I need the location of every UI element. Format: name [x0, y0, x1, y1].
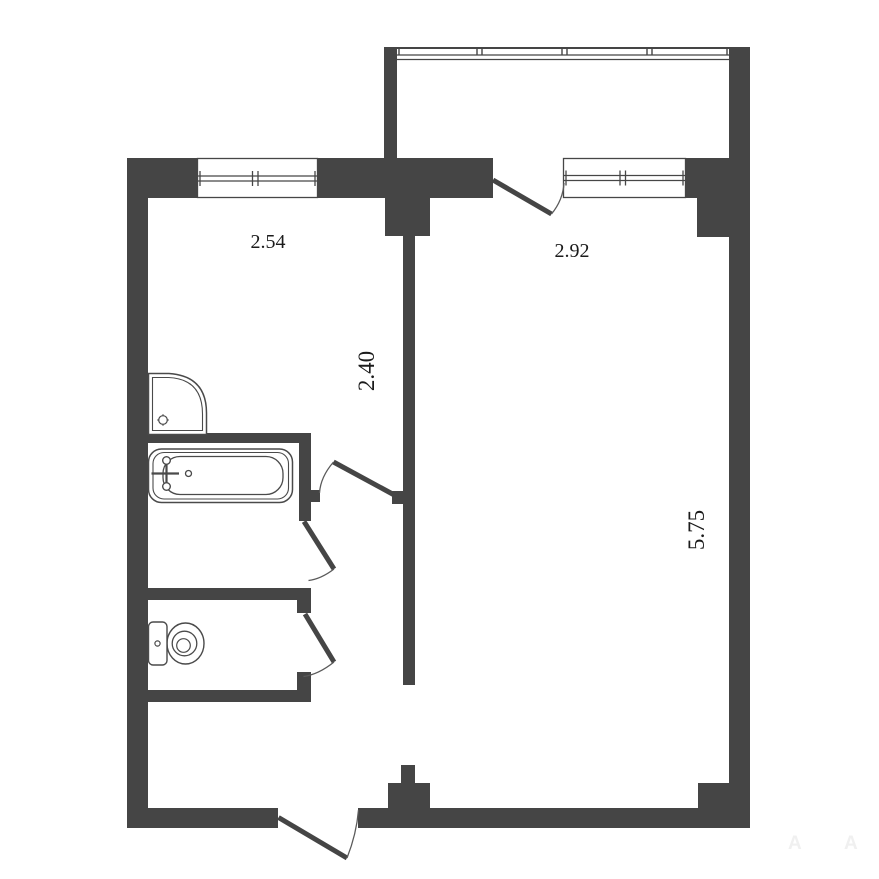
bathroom-door-leaf: [304, 522, 334, 570]
right-exterior-wall: [729, 47, 750, 828]
pier-entrance-stem: [401, 765, 415, 783]
toilet-door-jamb-top: [297, 588, 311, 613]
shower-outer-outline: [149, 374, 207, 435]
kitchen-door-leaf: [334, 462, 399, 497]
bathroom-door-jamb: [299, 490, 320, 502]
floorplan-svg: 2.54 2.92 2.40 5.75 A A: [0, 0, 879, 879]
bottom-wall-right-segment: [358, 808, 750, 828]
living-room-window: [564, 159, 686, 198]
balcony-door-leaf: [493, 180, 552, 214]
faucet-knob-bottom: [163, 483, 171, 491]
balcony-door: [493, 180, 564, 214]
faucet-knob-top: [163, 457, 171, 465]
left-exterior-wall: [127, 158, 148, 828]
entrance-door: [279, 810, 359, 858]
toilet-door: [304, 614, 335, 677]
entrance-door-swing-arc: [347, 810, 359, 858]
balcony-glazing: [393, 48, 729, 60]
toilet-tank: [149, 622, 168, 665]
fixtures: [149, 374, 293, 666]
kitchen-door: [320, 462, 399, 497]
living-window-niche: [564, 159, 686, 198]
kitchen-depth-label: 2.40: [354, 351, 379, 391]
doors: [279, 180, 565, 858]
bath-toilet-divider-wall: [148, 588, 311, 600]
bathroom-door: [304, 522, 334, 581]
pier-entrance: [388, 783, 430, 808]
bathtub-icon: [149, 449, 293, 503]
bathroom-door-swing-arc: [309, 569, 335, 581]
balcony-door-swing-arc: [552, 183, 565, 214]
balcony-left-wall: [384, 47, 397, 158]
bottom-wall-left-segment: [127, 808, 278, 828]
middle-partition-wall: [403, 236, 415, 685]
floorplan-canvas: 2.54 2.92 2.40 5.75 A A: [0, 0, 879, 879]
living-width-label: 2.92: [555, 240, 590, 262]
pier-bottom-right: [698, 783, 729, 808]
pier-top-middle: [385, 198, 430, 236]
watermark-letter-2: A: [844, 833, 858, 854]
bathroom-right-wall: [299, 433, 311, 521]
kitchen-width-label: 2.54: [251, 231, 286, 253]
dimension-labels: 2.54 2.92 2.40 5.75: [251, 231, 710, 550]
watermark: A A: [788, 833, 858, 854]
kitchen-window: [198, 159, 318, 198]
pier-top-right: [697, 198, 729, 237]
glazing-mullion-ticks: [399, 48, 727, 55]
toilet-icon: [149, 622, 205, 665]
living-depth-label: 5.75: [684, 510, 709, 550]
top-wall-left-of-kitchen-window: [127, 158, 197, 198]
toilet-door-leaf: [305, 614, 334, 662]
top-wall-mid-segment: [318, 158, 493, 198]
shower-cabin-icon: [149, 374, 207, 435]
top-wall-right-of-living-window: [686, 158, 729, 198]
entrance-door-leaf: [279, 818, 348, 859]
watermark-letter-1: A: [788, 833, 802, 854]
toilet-bottom-wall: [148, 690, 311, 702]
kitchen-door-swing-arc: [320, 462, 334, 493]
